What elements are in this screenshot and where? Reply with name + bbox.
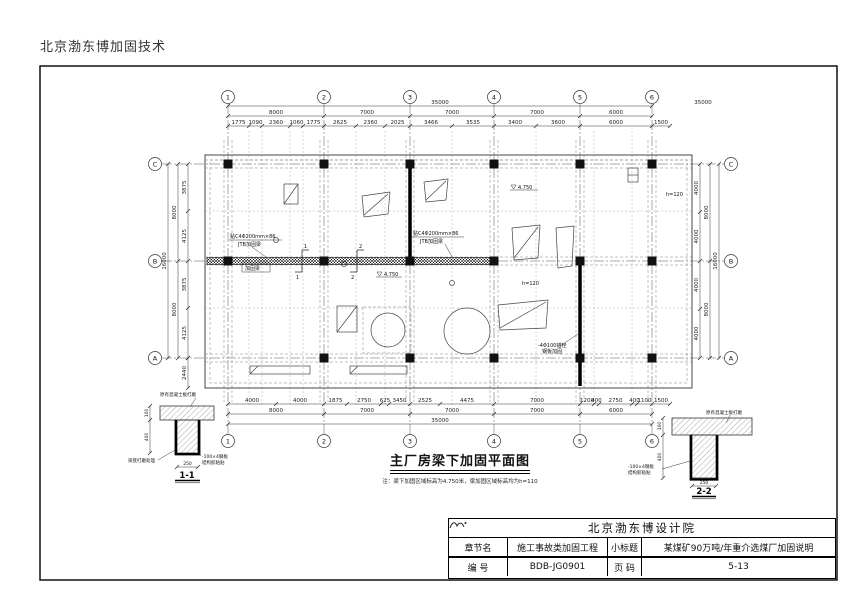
title-block: 北京渤东博设计院 章节名 施工事故类加固工程 小标题 某煤矿90万吨/年重介选煤… <box>448 518 836 579</box>
beam-note-2-line1: 贴C4Φ200mm×86 <box>413 230 458 237</box>
detail2-top-note: 原有混凝土板打磨 <box>706 409 742 416</box>
beam-note-1-line2: JTB加固梁 <box>237 241 261 248</box>
dim-text: 2440 <box>182 366 188 380</box>
dim-text: 7000 <box>360 110 374 116</box>
design-institute-name: 北京渤东博设计院 <box>588 520 696 536</box>
column-marker <box>648 257 657 266</box>
dim-text: 2750 <box>357 398 371 404</box>
dim-text: 3466 <box>424 120 438 126</box>
dim-text: 4125 <box>182 229 188 243</box>
detail1-dim-bottom: 250 <box>183 461 192 467</box>
dim-text: 3450 <box>393 398 407 404</box>
beam-B-strengthened <box>207 258 492 265</box>
drawing-title-group: 主厂房梁下加固平面图 注：梁下加固区域标高为4.750米，梁加固区域标高均为h=… <box>370 450 550 485</box>
dim-text: 1060 <box>290 120 304 126</box>
grid-bubble-label: 5 <box>578 93 582 101</box>
dim-text: 2750 <box>609 398 623 404</box>
dim-text: 3400 <box>508 120 522 126</box>
grid-bubble-label: B <box>153 257 157 265</box>
grid-bubble-label: 6 <box>650 93 654 101</box>
column-marker <box>224 257 233 266</box>
grid-bubble-label: 6 <box>650 437 654 445</box>
column-marker <box>648 160 657 169</box>
dim-text: 6000 <box>609 120 623 126</box>
dim-text: 2025 <box>391 120 405 126</box>
grid-bubble-label: 3 <box>408 437 412 445</box>
detail2-dim-bottom: 250 <box>700 480 709 486</box>
dim-text: 4000 <box>694 229 700 243</box>
dim-text: 4000 <box>694 278 700 292</box>
detail1-label: 1-1 <box>179 471 194 481</box>
detail-1-1: 原有混凝土板打磨 100 400 -100×4钢板 结构胶粘贴 梁底打磨处理 2… <box>128 391 228 483</box>
title-block-row-2: 编 号 BDB-JG0901 页 码 5-13 <box>449 556 835 576</box>
dim-text: 3875 <box>182 180 188 194</box>
beam-box-label: 加固梁 <box>245 265 260 272</box>
grid-bubble-label: A <box>729 354 734 362</box>
dim-text: 7000 <box>360 408 374 414</box>
grid-bubble-label: 4 <box>492 437 496 445</box>
column-marker <box>320 160 329 169</box>
dim-text: 2360 <box>269 120 283 126</box>
dim-text: 7000 <box>530 110 544 116</box>
dim-text: 1875 <box>329 398 343 404</box>
dim-text: 35000 <box>694 100 712 106</box>
slab-thickness-label: h=120 <box>522 281 539 287</box>
dim-text: 7000 <box>445 408 459 414</box>
detail2-dim-100: 100 <box>657 422 663 431</box>
detail1-top-note: 原有混凝土板打磨 <box>160 391 196 398</box>
dim-text: 7000 <box>530 408 544 414</box>
dim-text: 1100 <box>638 398 652 404</box>
dim-text: 35000 <box>431 100 449 106</box>
dim-text: 2625 <box>333 120 347 126</box>
section-1-mark: 1 <box>304 244 307 250</box>
dim-text: 16000 <box>713 252 719 270</box>
grid-bubble-label: B <box>729 257 733 265</box>
round-opening-large <box>444 308 490 354</box>
dim-text: 8000 <box>172 205 178 219</box>
column-marker <box>576 354 585 363</box>
column-marker <box>406 160 415 169</box>
anchor-note-line1: -4Φ100锚栓 <box>538 342 566 349</box>
grid-bubble-label: 2 <box>322 93 326 101</box>
dim-text: 6000 <box>609 110 623 116</box>
anchor-note-line2: 钢板加固 <box>542 348 562 355</box>
grid-bubble-label: 2 <box>322 437 326 445</box>
detail1-side-note1: -100×4钢板 <box>202 453 228 460</box>
dim-text: 1500 <box>654 398 668 404</box>
column-marker <box>490 257 499 266</box>
dim-text: 4000 <box>694 181 700 195</box>
dim-text: 8000 <box>704 205 710 219</box>
section-2-mark: 2 <box>351 275 354 281</box>
beam-note-1-line1: 贴C4Φ200mm×86 <box>230 233 275 240</box>
dim-text: 400 <box>591 398 602 404</box>
column-marker <box>490 160 499 169</box>
interior-dashed-grid <box>205 131 692 406</box>
dim-text: 3600 <box>551 120 565 126</box>
detail2-side-note1: -100×4钢板 <box>628 463 654 470</box>
detail2-label: 2-2 <box>696 487 711 497</box>
column-marker <box>320 354 329 363</box>
column-marker <box>490 354 499 363</box>
dim-text: 8000 <box>269 110 283 116</box>
dim-text: 6000 <box>609 408 623 414</box>
column-marker <box>224 160 233 169</box>
drawing-sheet: 北京渤东博加固技术 <box>0 0 863 609</box>
title-block-company-row: 北京渤东博设计院 <box>449 519 835 538</box>
page-value: 5-13 <box>641 557 835 576</box>
detail1-dim-400: 400 <box>144 433 150 442</box>
slab-thickness-label: h=120 <box>666 192 683 198</box>
grid-bubbles-layer: 112233445566CCBBAA <box>149 91 738 448</box>
page-label: 页 码 <box>607 557 641 576</box>
dim-text: 1090 <box>249 120 263 126</box>
company-logo <box>449 519 467 531</box>
dim-text: 16000 <box>162 252 168 270</box>
grid-bubble-label: 1 <box>226 93 230 101</box>
detail-2-2: 原有混凝土板打磨 100 400 -100×4钢板 结构胶粘贴 250 2-2 <box>628 409 752 499</box>
column-marker <box>648 354 657 363</box>
dim-text: 7000 <box>445 110 459 116</box>
dim-text: 4475 <box>460 398 474 404</box>
dim-text: 8000 <box>269 408 283 414</box>
grid-bubble-label: 1 <box>226 437 230 445</box>
dim-text: 3535 <box>466 120 480 126</box>
detail2-dim-400: 400 <box>657 453 663 462</box>
dim-text: 8000 <box>704 302 710 316</box>
drawing-note: 注：梁下加固区域标高为4.750米，梁加固区域标高均为h=110 <box>370 477 550 485</box>
dim-text: 4000 <box>245 398 259 404</box>
dim-text: 625 <box>380 398 391 404</box>
subtitle-label: 小标题 <box>607 538 641 557</box>
column-marker <box>406 257 415 266</box>
building-outline <box>205 155 692 388</box>
dim-text: 4000 <box>694 326 700 340</box>
dim-text: 1775 <box>307 120 321 126</box>
grid-bubble-label: C <box>153 160 158 168</box>
grid-bubble-label: A <box>153 354 158 362</box>
number-value: BDB-JG0901 <box>507 557 607 576</box>
dim-text: 8000 <box>172 302 178 316</box>
title-block-row-1: 章节名 施工事故类加固工程 小标题 某煤矿90万吨/年重介选煤厂加固说明 <box>449 537 835 557</box>
column-marker <box>576 160 585 169</box>
chapter-label: 章节名 <box>449 538 507 557</box>
dim-text: 2525 <box>418 398 432 404</box>
dim-text: 1500 <box>654 120 668 126</box>
beam-note-2-line2: JTB加固梁 <box>419 238 443 245</box>
column-marker <box>406 354 415 363</box>
section-2-mark: 2 <box>359 244 362 250</box>
column-marker <box>320 257 329 266</box>
drawing-title: 主厂房梁下加固平面图 <box>390 450 530 474</box>
subtitle-value: 某煤矿90万吨/年重介选煤厂加固说明 <box>641 538 835 557</box>
number-label: 编 号 <box>449 557 507 576</box>
plan-annotations: 贴C4Φ200mm×86 JTB加固梁 贴C4Φ200mm×86 JTB加固梁 … <box>229 185 683 355</box>
detail1-dim-100: 100 <box>144 409 150 418</box>
round-opening-small <box>371 313 405 347</box>
section-1-mark: 1 <box>296 275 299 281</box>
detail2-side-note2: 结构胶粘贴 <box>628 469 651 476</box>
grid-bubble-label: C <box>729 160 734 168</box>
dim-text: 35000 <box>431 418 449 424</box>
detail1-bottom-note: 梁底打磨处理 <box>128 457 155 464</box>
dim-text: 2360 <box>364 120 378 126</box>
chapter-value: 施工事故类加固工程 <box>507 538 607 557</box>
dim-text: 4125 <box>182 326 188 340</box>
dim-text: 3875 <box>182 277 188 291</box>
grid-bubble-label: 4 <box>492 93 496 101</box>
sheet-frame <box>40 66 837 580</box>
dim-text: 1775 <box>232 120 246 126</box>
detail1-side-note2: 结构胶粘贴 <box>202 459 225 466</box>
grid-bubble-label: 5 <box>578 437 582 445</box>
dim-text: 7000 <box>530 398 544 404</box>
column-marker <box>576 257 585 266</box>
dim-text: 4000 <box>293 398 307 404</box>
grid-bubble-label: 3 <box>408 93 412 101</box>
